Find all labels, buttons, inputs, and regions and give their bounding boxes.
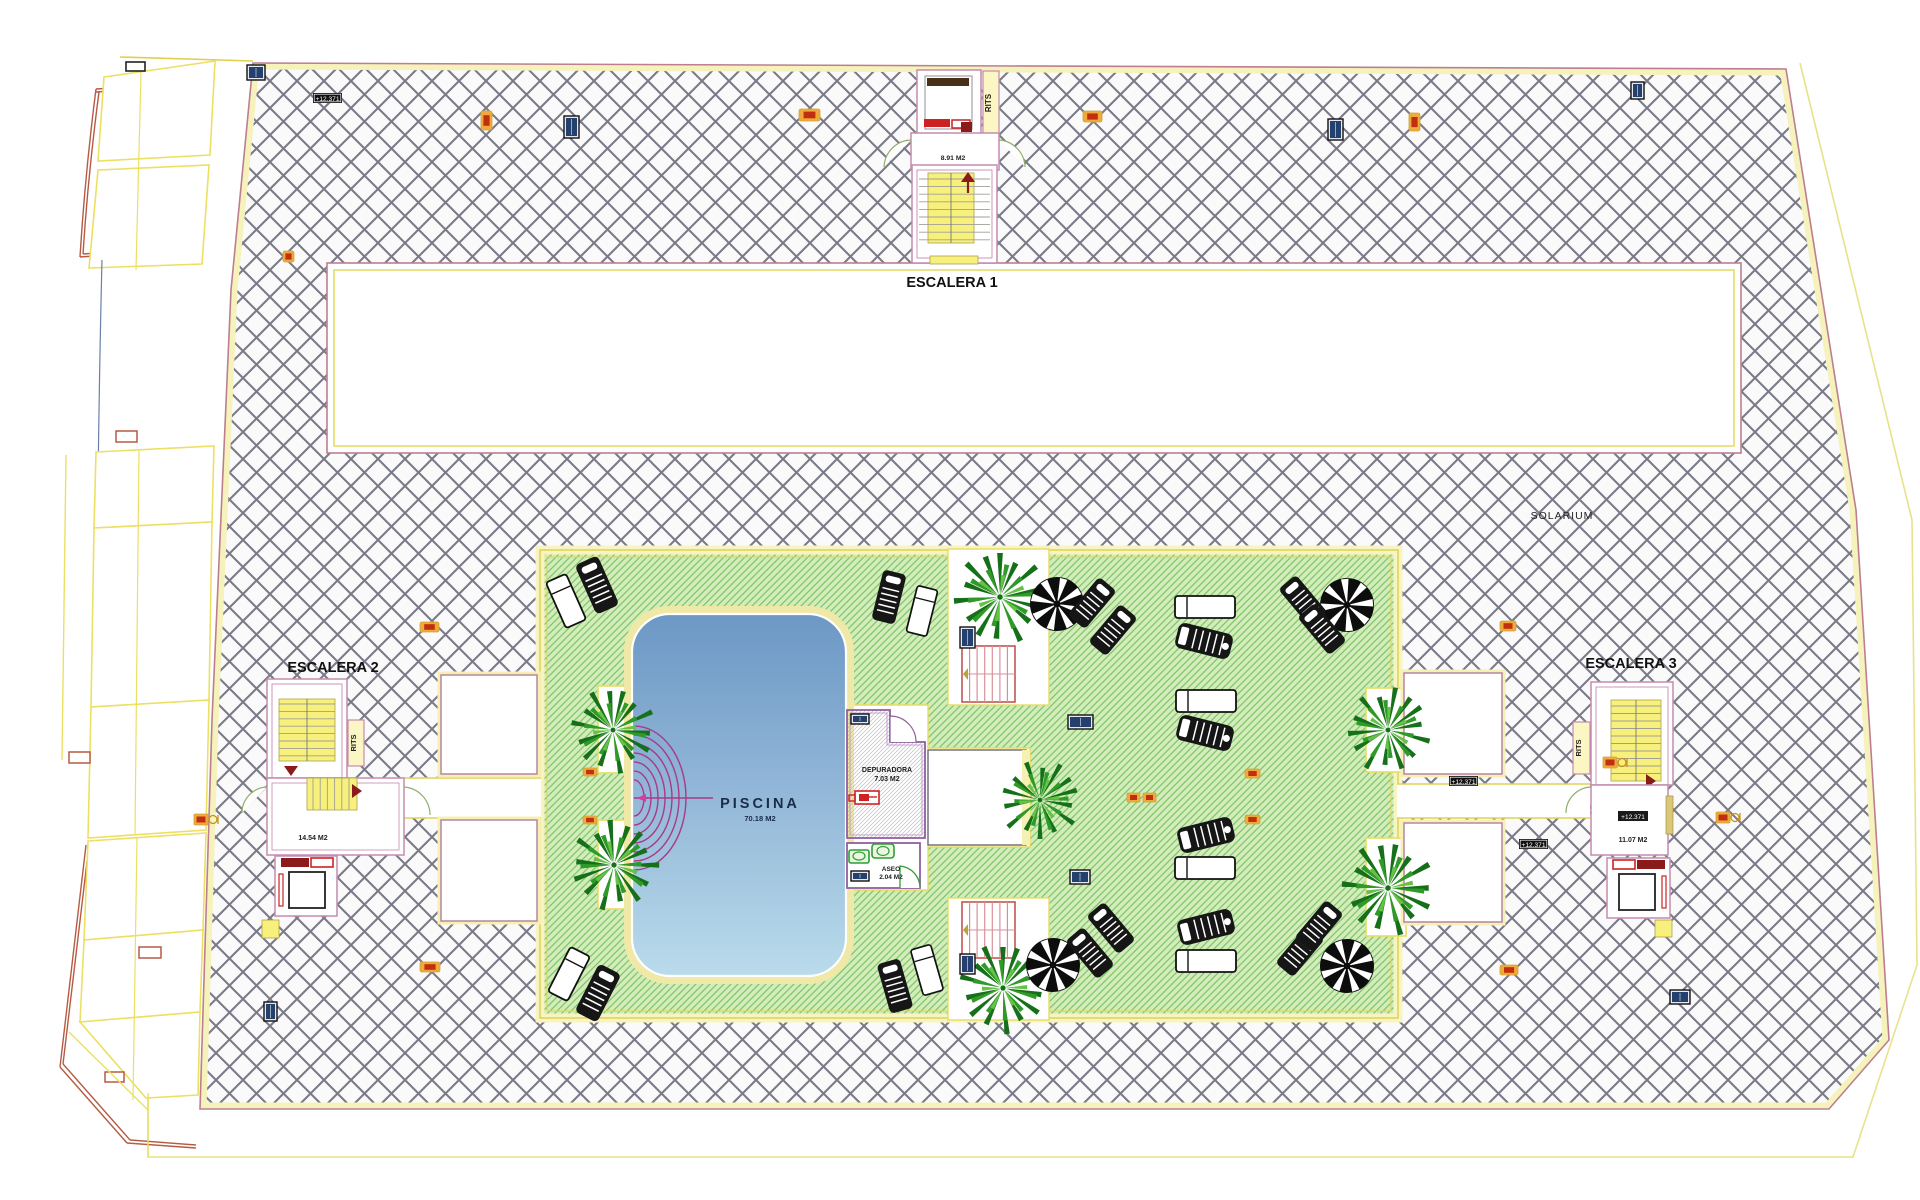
svg-text:+12.371: +12.371 bbox=[1521, 842, 1545, 849]
svg-text:ESCALERA 1: ESCALERA 1 bbox=[906, 275, 997, 291]
svg-text:SOLARIUM: SOLARIUM bbox=[1531, 510, 1594, 522]
svg-text:RITS: RITS bbox=[984, 93, 993, 112]
svg-text:ASEO: ASEO bbox=[882, 866, 900, 873]
svg-text:+12.371: +12.371 bbox=[315, 96, 339, 103]
svg-text:PISCINA: PISCINA bbox=[720, 796, 800, 812]
svg-text:RITS: RITS bbox=[1574, 739, 1583, 756]
svg-text:ESCALERA 2: ESCALERA 2 bbox=[287, 660, 378, 676]
svg-text:ESCALERA 3: ESCALERA 3 bbox=[1585, 656, 1676, 672]
svg-text:11.07 M2: 11.07 M2 bbox=[1619, 837, 1648, 844]
svg-text:14.54 M2: 14.54 M2 bbox=[298, 835, 327, 842]
svg-text:2.04 M2: 2.04 M2 bbox=[879, 874, 903, 881]
svg-text:+12.371: +12.371 bbox=[1621, 814, 1645, 821]
svg-text:+12.371: +12.371 bbox=[1451, 779, 1475, 786]
svg-text:7.03 M2: 7.03 M2 bbox=[874, 776, 899, 783]
svg-text:70.18 M2: 70.18 M2 bbox=[744, 814, 775, 823]
svg-text:RITS: RITS bbox=[349, 734, 358, 751]
svg-text:8.91 M2: 8.91 M2 bbox=[941, 155, 966, 162]
svg-text:DEPURADORA: DEPURADORA bbox=[862, 767, 912, 774]
